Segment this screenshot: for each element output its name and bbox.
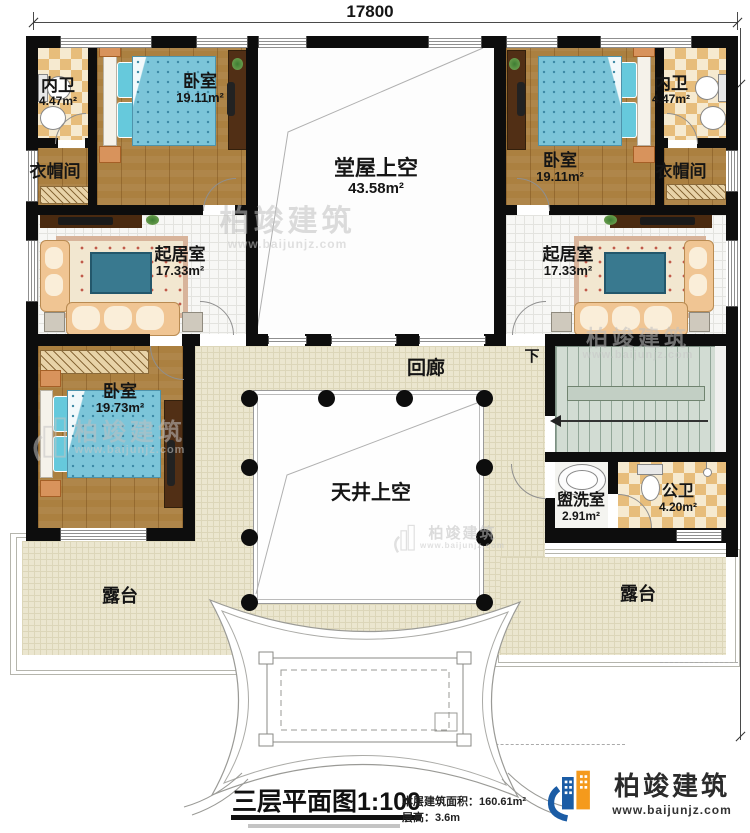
room-name: 内卫: [654, 74, 688, 93]
wall-segment: [258, 334, 268, 346]
brand-name: 柏竣建筑: [602, 766, 742, 803]
nightstand: [99, 146, 121, 163]
tv-on-dresser: [167, 440, 175, 486]
tv: [58, 217, 113, 225]
coffee-table: [90, 252, 152, 294]
stair-direction-arrow: [550, 415, 561, 427]
wall-segment: [608, 462, 618, 494]
top-dimension-label: 17800: [330, 2, 410, 21]
room-name: 堂屋上空: [334, 157, 418, 180]
brand-website: www.baijunjz.com: [602, 803, 742, 817]
window: [258, 36, 307, 48]
room-label-corridor: 回廊: [400, 358, 452, 379]
wall-segment: [246, 48, 258, 346]
wall-segment: [697, 138, 726, 148]
side-table: [689, 312, 710, 332]
wall-segment: [88, 48, 97, 205]
nightstand: [40, 370, 61, 387]
drawing-title-text: 三层平面图: [232, 788, 357, 816]
wall-segment: [26, 334, 150, 346]
sofa-cushion: [689, 247, 707, 269]
floor-height-value: 3.6m: [435, 812, 460, 824]
stairs-down-label: 下: [522, 349, 542, 366]
floor-plan-canvas: 17800 18000: [0, 0, 750, 833]
floor-height-label: 层高：: [402, 812, 435, 824]
wall-segment: [395, 334, 419, 346]
bed-mattress: [538, 56, 622, 146]
room-name: 内卫: [41, 76, 75, 95]
room-label-cloakroom-right: 衣帽间: [649, 162, 713, 181]
sofa-cushion: [72, 306, 100, 330]
window: [600, 36, 692, 48]
room-label-hall-void: 堂屋上空 43.58m²: [300, 157, 452, 197]
sofa-cushion: [612, 306, 640, 330]
room-label-living-right: 起居室 17.33m²: [532, 245, 604, 279]
room-name: 回廊: [407, 358, 445, 379]
room-label-courtyard-void: 天井上空: [300, 482, 442, 504]
title-underline-shadow: [248, 824, 400, 828]
lower-roof-dashed-line: [660, 662, 738, 663]
stair-direction-line: [560, 420, 708, 422]
window: [268, 336, 307, 344]
room-name: 露台: [620, 584, 656, 604]
window: [196, 36, 248, 48]
drawing-title: 三层平面图1:100: [232, 782, 421, 818]
pillow: [620, 102, 637, 138]
room-name: 起居室: [543, 245, 594, 264]
room-name: 公卫: [662, 483, 694, 500]
title-underline: [231, 815, 421, 820]
sofa-cushion: [644, 306, 672, 330]
window: [676, 530, 722, 541]
wall-segment: [494, 48, 506, 346]
room-area: 4.20m²: [650, 501, 706, 514]
nightstand: [633, 146, 655, 163]
room-label-terrace-left: 露台: [92, 586, 148, 606]
wall-segment: [183, 346, 195, 528]
wall-segment: [500, 205, 517, 215]
wall-segment: [26, 205, 203, 215]
wall-segment: [85, 138, 97, 148]
room-name: 衣帽间: [656, 162, 707, 181]
plant: [232, 58, 243, 70]
clothes-rack: [666, 184, 726, 200]
sofa-cushion: [689, 274, 707, 296]
wall-segment: [545, 346, 555, 416]
pillow: [620, 62, 637, 98]
room-area: 19.11m²: [520, 170, 600, 185]
room-area: 19.11m²: [160, 91, 240, 106]
window: [26, 240, 38, 302]
building-area-note: 本层建筑面积：160.61m²: [402, 793, 526, 809]
room-label-washroom: 盥洗室 2.91m²: [548, 492, 614, 523]
floor-height-note: 层高：3.6m: [402, 809, 460, 825]
area-value: 160.61m²: [479, 796, 526, 808]
shower-stem: [706, 462, 707, 469]
room-name: 露台: [102, 586, 138, 606]
window: [506, 36, 558, 48]
wall-segment: [545, 452, 738, 462]
side-table: [44, 312, 65, 332]
room-label-ensuite-right: 内卫 4.47m²: [641, 74, 701, 106]
wall-segment: [182, 334, 200, 346]
room-name: 天井上空: [331, 482, 411, 504]
bed-headboard: [40, 390, 53, 478]
room-area: 17.33m²: [144, 264, 216, 279]
coffee-table: [604, 252, 666, 294]
brand-logo-icon: [544, 766, 598, 824]
sink: [700, 106, 726, 130]
room-label-bedroom-bottom-left: 卧室 19.73m²: [80, 382, 160, 416]
window: [60, 528, 147, 541]
plant: [146, 215, 159, 225]
wall-segment: [655, 48, 664, 205]
window: [419, 336, 486, 344]
room-area: 4.47m²: [641, 93, 701, 106]
room-area: 2.91m²: [548, 510, 614, 523]
room-label-cloakroom-left: 衣帽间: [24, 162, 86, 181]
clothes-rack: [40, 186, 90, 204]
sofa-cushion: [104, 306, 132, 330]
room-label-ensuite-left: 内卫 4.47m²: [28, 76, 88, 108]
right-dimension-line: [740, 28, 741, 740]
window: [428, 36, 482, 48]
area-label: 本层建筑面积：: [402, 796, 479, 808]
room-label-bedroom-top-left: 卧室 19.11m²: [160, 72, 240, 106]
room-name: 盥洗室: [557, 492, 605, 509]
tv-on-dresser: [517, 82, 525, 116]
sofa-cushion: [580, 306, 608, 330]
side-table: [551, 312, 572, 332]
room-label-living-left: 起居室 17.33m²: [144, 245, 216, 279]
brand-logo-text: 柏竣建筑 www.baijunjz.com: [602, 766, 742, 817]
room-label-public-bath: 公卫 4.20m²: [650, 483, 706, 514]
wall-segment: [235, 205, 250, 215]
room-name: 卧室: [183, 72, 217, 91]
room-label-bedroom-top-right: 卧室 19.11m²: [520, 151, 600, 185]
sofa-cushion: [45, 247, 63, 269]
wall-segment: [549, 205, 738, 215]
top-dimension-line: [33, 22, 737, 23]
sofa-cushion: [45, 274, 63, 296]
room-name: 起居室: [155, 245, 206, 264]
wall-segment: [305, 334, 331, 346]
wall-segment: [545, 334, 738, 346]
room-area: 4.47m²: [28, 95, 88, 108]
bed-headboard: [103, 56, 117, 146]
room-name: 卧室: [103, 382, 137, 401]
plant: [509, 58, 520, 70]
room-label-terrace-right: 露台: [610, 584, 666, 604]
plant: [604, 215, 617, 225]
tv: [640, 217, 695, 225]
window: [60, 36, 152, 48]
window: [726, 150, 738, 192]
stairs-down-text: 下: [524, 348, 539, 365]
window: [726, 240, 738, 307]
nightstand: [40, 480, 61, 497]
shower-head: [703, 468, 712, 477]
sofa-cushion: [136, 306, 164, 330]
washbasin-inner: [566, 470, 598, 490]
room-area: 43.58m²: [300, 181, 452, 198]
room-area: 17.33m²: [532, 264, 604, 279]
stair-handrail: [567, 386, 705, 401]
room-name: 卧室: [543, 151, 577, 170]
toilet-tank: [637, 464, 663, 475]
room-name: 衣帽间: [30, 162, 81, 181]
stairs-side-strip: [715, 346, 726, 452]
room-area: 19.73m²: [80, 401, 160, 416]
window: [331, 336, 397, 344]
